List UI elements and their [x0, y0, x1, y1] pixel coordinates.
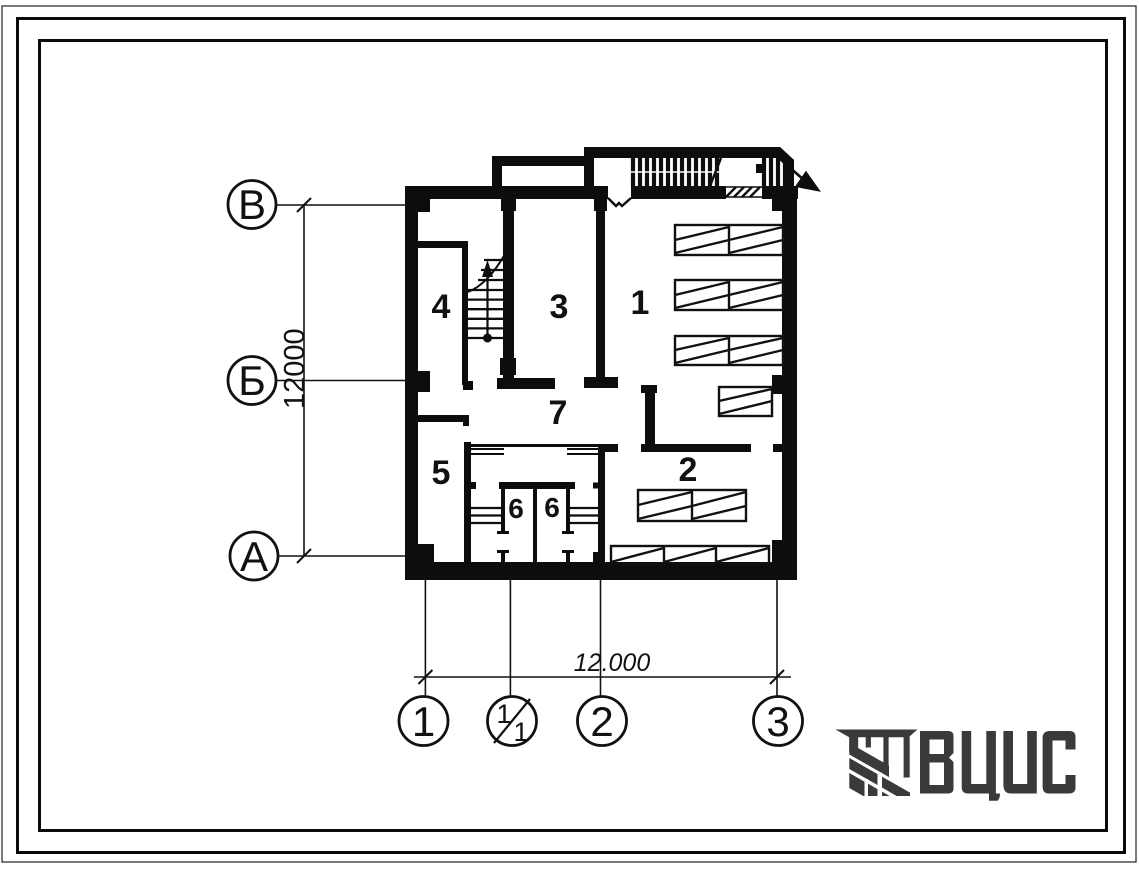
svg-text:Б: Б — [238, 357, 266, 404]
svg-text:1: 1 — [496, 699, 511, 729]
svg-text:1: 1 — [513, 717, 528, 747]
svg-text:5: 5 — [432, 454, 451, 492]
svg-text:2: 2 — [679, 451, 698, 489]
svg-text:В: В — [238, 181, 266, 228]
svg-text:2: 2 — [590, 698, 613, 745]
svg-text:3: 3 — [766, 698, 789, 745]
svg-text:3: 3 — [550, 288, 569, 326]
svg-text:4: 4 — [432, 288, 451, 326]
svg-text:6: 6 — [544, 492, 560, 523]
svg-text:12.000: 12.000 — [574, 649, 651, 677]
svg-text:7: 7 — [549, 394, 568, 432]
svg-text:6: 6 — [508, 493, 524, 524]
svg-text:1: 1 — [412, 698, 435, 745]
svg-text:1: 1 — [631, 284, 650, 322]
svg-text:А: А — [240, 533, 268, 580]
svg-text:12000: 12000 — [279, 328, 311, 409]
